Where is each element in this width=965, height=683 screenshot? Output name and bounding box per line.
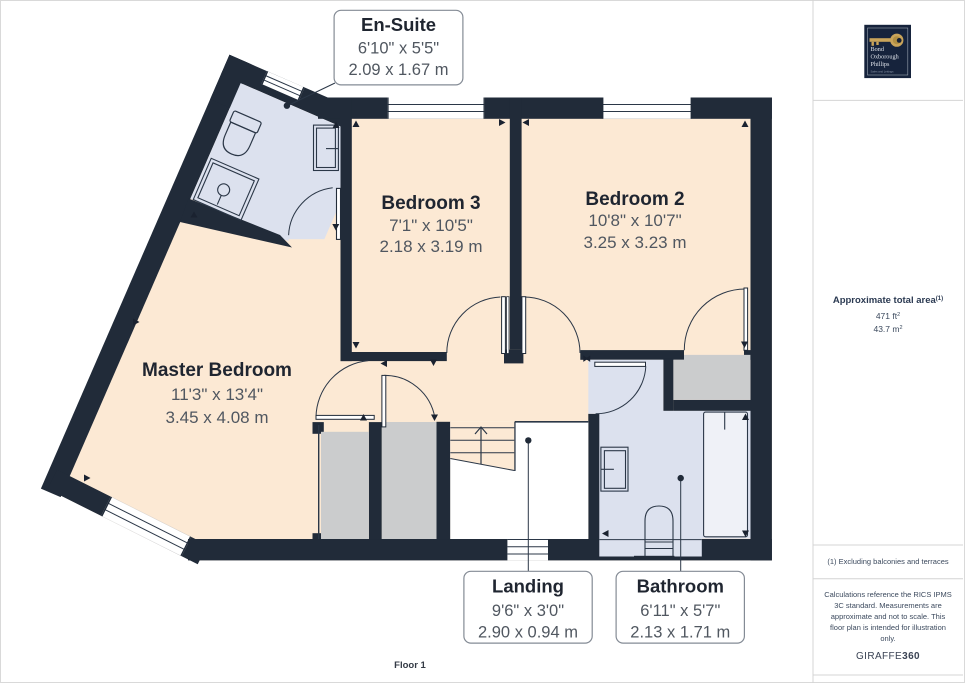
svg-text:Master Bedroom: Master Bedroom (142, 360, 292, 381)
svg-text:10'8" x 10'7": 10'8" x 10'7" (588, 211, 681, 230)
svg-text:Floor 1: Floor 1 (394, 660, 426, 671)
svg-text:Bond: Bond (871, 46, 885, 53)
svg-text:43.7 m2: 43.7 m2 (873, 324, 902, 334)
svg-text:2.90 x 0.94 m: 2.90 x 0.94 m (478, 624, 578, 642)
svg-text:2.13 x 1.71 m: 2.13 x 1.71 m (630, 624, 730, 642)
svg-text:Bedroom 2: Bedroom 2 (585, 189, 684, 210)
svg-text:GIRAFFE360: GIRAFFE360 (856, 651, 920, 662)
svg-text:Calculations reference the RIC: Calculations reference the RICS IPMS (824, 590, 952, 599)
svg-text:11'3" x 13'4": 11'3" x 13'4" (171, 385, 263, 404)
svg-text:2.09 x 1.67 m: 2.09 x 1.67 m (349, 61, 449, 79)
svg-text:2.18 x 3.19 m: 2.18 x 3.19 m (379, 237, 482, 256)
svg-text:(1) Excluding balconies and te: (1) Excluding balconies and terraces (827, 557, 949, 566)
svg-text:only.: only. (880, 634, 895, 643)
svg-text:471 ft2: 471 ft2 (876, 311, 900, 321)
svg-text:Bathroom: Bathroom (637, 576, 724, 597)
svg-text:Sales and Lettings: Sales and Lettings (871, 70, 895, 74)
svg-text:approximate and not to scale.: approximate and not to scale. This (831, 612, 946, 621)
svg-text:Oxborough: Oxborough (871, 54, 900, 61)
svg-text:6'11" x 5'7": 6'11" x 5'7" (640, 602, 720, 620)
svg-text:7'1" x 10'5": 7'1" x 10'5" (389, 216, 473, 235)
svg-text:Approximate total area(1): Approximate total area(1) (833, 295, 943, 306)
svg-text:3.45 x 4.08 m: 3.45 x 4.08 m (165, 408, 268, 427)
svg-text:Bedroom 3: Bedroom 3 (381, 193, 480, 214)
svg-text:9'6" x 3'0": 9'6" x 3'0" (492, 602, 564, 620)
svg-text:En-Suite: En-Suite (361, 14, 436, 35)
svg-text:floor plan is intended for ill: floor plan is intended for illustration (830, 623, 946, 632)
svg-text:6'10" x 5'5": 6'10" x 5'5" (358, 40, 439, 58)
svg-text:3C standard. Measurements are: 3C standard. Measurements are (834, 601, 942, 610)
svg-text:Phillips: Phillips (871, 61, 891, 68)
svg-text:Landing: Landing (492, 576, 564, 597)
svg-text:3.25 x 3.23 m: 3.25 x 3.23 m (583, 233, 686, 252)
